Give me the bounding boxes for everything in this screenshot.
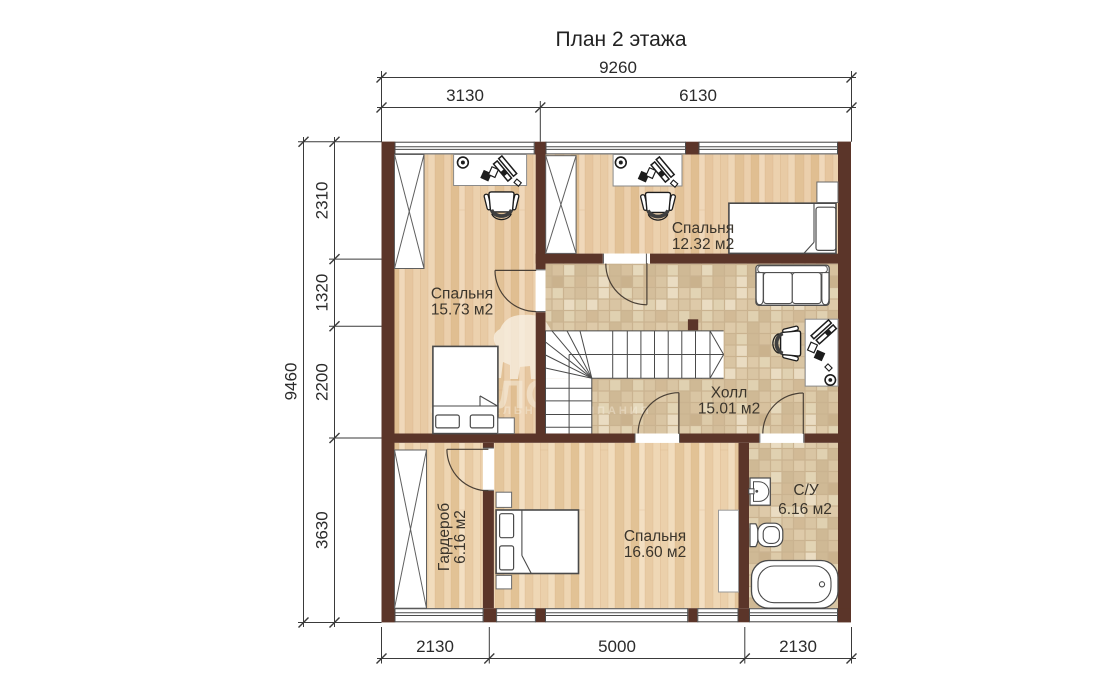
svg-text:16.60 м2: 16.60 м2 (624, 544, 686, 561)
svg-text:Гардероб: Гардероб (436, 503, 453, 571)
svg-text:Холл: Холл (711, 385, 748, 402)
svg-text:5000: 5000 (598, 637, 636, 656)
svg-text:15.01 м2: 15.01 м2 (698, 401, 760, 418)
svg-text:6130: 6130 (679, 86, 717, 105)
svg-text:9460: 9460 (282, 363, 301, 401)
svg-text:15.73 м2: 15.73 м2 (431, 302, 493, 319)
svg-text:Спальня: Спальня (624, 528, 686, 545)
svg-text:2130: 2130 (779, 637, 817, 656)
svg-text:2310: 2310 (313, 181, 332, 219)
svg-text:План 2 этажа: План 2 этажа (555, 28, 686, 51)
svg-text:Спальня: Спальня (672, 220, 734, 237)
svg-text:3630: 3630 (313, 511, 332, 549)
svg-text:1320: 1320 (313, 274, 332, 312)
svg-text:С/У: С/У (793, 482, 819, 499)
svg-text:2200: 2200 (313, 363, 332, 401)
svg-text:12.32 м2: 12.32 м2 (672, 236, 734, 253)
svg-text:2130: 2130 (416, 637, 454, 656)
svg-text:9260: 9260 (599, 58, 637, 77)
svg-text:Спальня: Спальня (431, 286, 493, 303)
svg-text:6.16 м2: 6.16 м2 (778, 501, 832, 518)
svg-text:6.16 м2: 6.16 м2 (452, 510, 469, 564)
svg-text:3130: 3130 (446, 86, 484, 105)
